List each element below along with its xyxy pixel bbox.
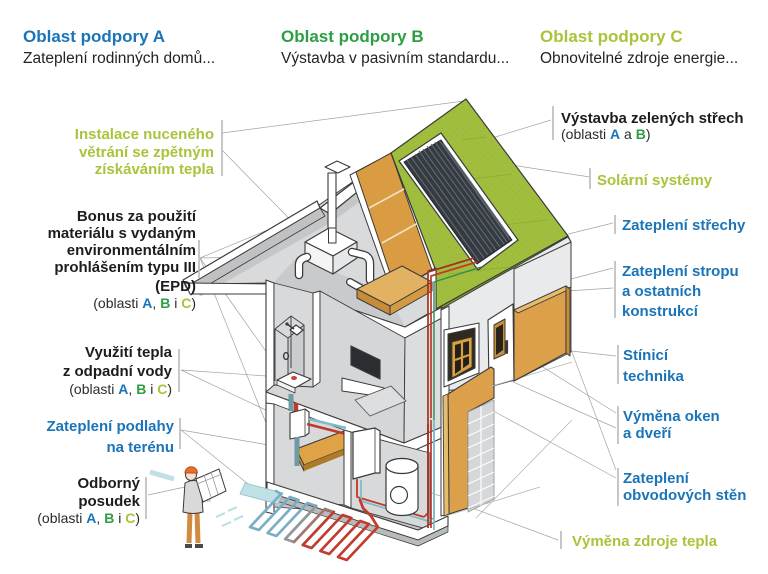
svg-text:Výměna zdroje tepla: Výměna zdroje tepla — [572, 533, 718, 550]
svg-text:(oblasti A, B i C): (oblasti A, B i C) — [69, 381, 172, 397]
svg-text:Bonus za použití: Bonus za použití — [77, 208, 197, 225]
svg-text:a ostatních: a ostatních — [622, 283, 701, 300]
svg-text:Zateplení rodinných domů...: Zateplení rodinných domů... — [23, 50, 215, 67]
svg-text:Výstavba v pasivním standardu.: Výstavba v pasivním standardu... — [281, 50, 509, 67]
svg-text:na terénu: na terénu — [106, 439, 174, 456]
svg-text:konstrukcí: konstrukcí — [622, 303, 699, 320]
svg-text:Obnovitelné zdroje energie...: Obnovitelné zdroje energie... — [540, 50, 738, 67]
svg-text:větrání se zpětným: větrání se zpětným — [79, 144, 214, 161]
svg-text:materiálu s vydaným: materiálu s vydaným — [48, 225, 196, 242]
svg-text:Zateplení: Zateplení — [623, 470, 690, 487]
svg-text:Stínicí: Stínicí — [623, 347, 669, 364]
svg-text:Zateplení podlahy: Zateplení podlahy — [46, 418, 174, 435]
svg-text:Oblast podpory A: Oblast podpory A — [23, 27, 165, 46]
svg-text:environmentálním: environmentálním — [67, 242, 196, 259]
svg-text:Výstavba zelených střech: Výstavba zelených střech — [561, 110, 744, 127]
svg-text:(EPD): (EPD) — [155, 278, 196, 295]
svg-text:(oblasti A, B i C): (oblasti A, B i C) — [93, 295, 196, 311]
svg-text:Solární systémy: Solární systémy — [597, 172, 713, 189]
svg-text:Zateplení stropu: Zateplení stropu — [622, 263, 739, 280]
svg-text:Zateplení střechy: Zateplení střechy — [622, 217, 746, 234]
svg-text:a dveří: a dveří — [623, 425, 672, 442]
svg-text:Oblast podpory B: Oblast podpory B — [281, 27, 424, 46]
svg-text:z odpadní vody: z odpadní vody — [63, 363, 173, 380]
svg-text:(oblasti A a B): (oblasti A a B) — [561, 126, 651, 142]
svg-text:Využití tepla: Využití tepla — [85, 344, 173, 361]
svg-text:obvodových stěn: obvodových stěn — [623, 487, 746, 504]
svg-text:Odborný: Odborný — [78, 475, 141, 492]
svg-text:Instalace nuceného: Instalace nuceného — [75, 126, 214, 143]
svg-text:Oblast podpory C: Oblast podpory C — [540, 27, 683, 46]
svg-text:technika: technika — [623, 368, 685, 385]
svg-text:posudek: posudek — [78, 493, 140, 510]
svg-text:(oblasti A, B i C): (oblasti A, B i C) — [37, 510, 140, 526]
svg-text:prohlášením typu III: prohlášením typu III — [54, 259, 196, 276]
svg-text:Výměna oken: Výměna oken — [623, 408, 720, 425]
svg-text:získáváním tepla: získáváním tepla — [95, 161, 215, 178]
